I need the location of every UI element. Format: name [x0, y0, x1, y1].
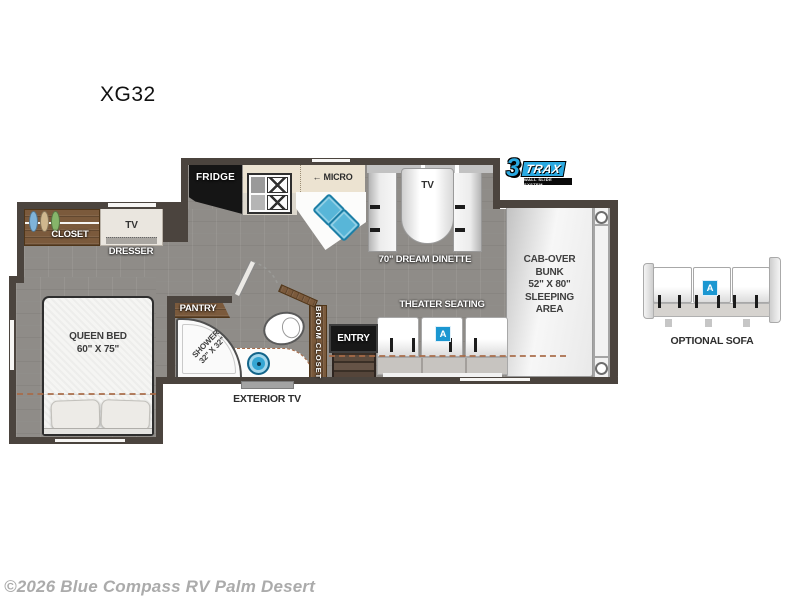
- theater-seating: A: [377, 315, 508, 379]
- cab-front-strip: [593, 206, 610, 377]
- seatbelt-icon: [370, 205, 380, 209]
- watermark: ©2026 Blue Compass RV Palm Desert: [4, 577, 315, 597]
- cab-strip-tick-bottom: [593, 356, 610, 358]
- fridge-label: FRIDGE: [189, 172, 242, 183]
- window-slit: [312, 159, 350, 162]
- hanger-tan-icon: [40, 211, 49, 232]
- wall-top-cab: [493, 200, 618, 208]
- 3trax-logo-word: TRAX: [521, 161, 566, 177]
- seatbelt-icon: [658, 295, 661, 308]
- option-a-badge: A: [702, 280, 718, 296]
- seatbelt-icon: [733, 295, 736, 308]
- theater-seating-label: THEATER SEATING: [378, 300, 506, 310]
- window-slit: [10, 320, 14, 370]
- seatbelt-icon: [390, 338, 393, 352]
- window-slit: [55, 439, 125, 442]
- toilet-bowl: [280, 315, 303, 340]
- slide-out-line: [17, 393, 156, 395]
- seatbelt-icon: [678, 295, 681, 308]
- sink-basins-icon: [251, 177, 265, 210]
- dinette-bench-right: [453, 165, 482, 252]
- broom-closet-label: BROOM CLOSET: [309, 306, 327, 380]
- seatbelt-icon: [412, 338, 415, 352]
- seatbelt-icon: [474, 338, 477, 352]
- optional-sofa-label: OPTIONAL SOFA: [643, 335, 781, 347]
- window-slit: [108, 203, 156, 207]
- closet-label: CLOSET: [42, 230, 98, 240]
- 3trax-logo-number: 3: [506, 154, 520, 183]
- dresser-tv-stand: [106, 237, 157, 244]
- 3trax-logo: 3 TRAX WALL SLIDE SYSTEM: [506, 160, 574, 192]
- bath-sink-icon: [247, 352, 270, 375]
- optional-sofa: A: [643, 255, 781, 331]
- wall-kitchen-left: [181, 158, 188, 209]
- seatbelt-icon: [695, 295, 698, 308]
- seatbelt-icon: [455, 228, 465, 232]
- sofa-cushion: [732, 267, 770, 303]
- sofa-leg: [705, 319, 712, 327]
- floorplan-page: XG32 CAB-OVER BUNK 52" X 80" SLEEPING AR…: [0, 0, 800, 600]
- exterior-tv-label: EXTERIOR TV: [206, 393, 328, 405]
- cab-strip-tick-top: [593, 224, 610, 226]
- cab-over-label: CAB-OVER BUNK 52" X 80" SLEEPING AREA: [506, 254, 593, 317]
- hanger-blue-icon: [29, 211, 38, 232]
- wall-left-upper: [17, 202, 24, 283]
- entry-label: ENTRY: [329, 333, 378, 344]
- bathroom-top-wall: [167, 296, 232, 303]
- sofa-armrest-right: [769, 257, 781, 323]
- option-a-badge: A: [435, 326, 451, 342]
- queen-bed-label: QUEEN BED 60" X 75": [44, 330, 152, 356]
- exterior-tv-bracket: [241, 381, 294, 389]
- sofa-seat-edge: [653, 303, 770, 317]
- range-sink-unit: [247, 173, 292, 214]
- wall-bed-slide-right: [156, 377, 163, 444]
- bathroom-door: [228, 252, 290, 306]
- bed-foot-strip: [44, 428, 152, 434]
- window-slit: [460, 378, 530, 381]
- dinette-tv-label: TV: [401, 180, 454, 191]
- queen-bed: QUEEN BED 60" X 75": [42, 296, 154, 436]
- 3trax-logo-tagline: WALL SLIDE SYSTEM: [524, 178, 572, 185]
- theater-cushion: [465, 317, 508, 357]
- page-title: XG32: [100, 83, 156, 107]
- dresser-tv-label: TV: [100, 220, 163, 231]
- seatbelt-icon: [455, 205, 465, 209]
- seatbelt-icon: [370, 228, 380, 232]
- seatbelt-icon: [717, 295, 720, 308]
- dinette-label: 70" DREAM DINETTE: [355, 255, 495, 265]
- stove-burners-icon: [267, 177, 288, 210]
- pantry-label: PANTRY: [172, 304, 224, 314]
- seatbelt-icon: [755, 295, 758, 308]
- sofa-leg: [743, 319, 750, 327]
- dinette-bench-left: [368, 165, 397, 252]
- pillow: [50, 399, 100, 431]
- pillow: [100, 399, 150, 431]
- micro-label: ← MICRO: [301, 172, 364, 182]
- wall-top-left: [17, 202, 182, 209]
- wall-right-front: [610, 200, 618, 384]
- wall-bottom-main: [156, 377, 618, 384]
- cab-porthole-top-icon: [595, 211, 608, 224]
- dresser-label: DRESSER: [96, 247, 166, 257]
- slide-out-line: [329, 355, 566, 357]
- cab-porthole-bottom-icon: [595, 362, 608, 375]
- sofa-leg: [665, 319, 672, 327]
